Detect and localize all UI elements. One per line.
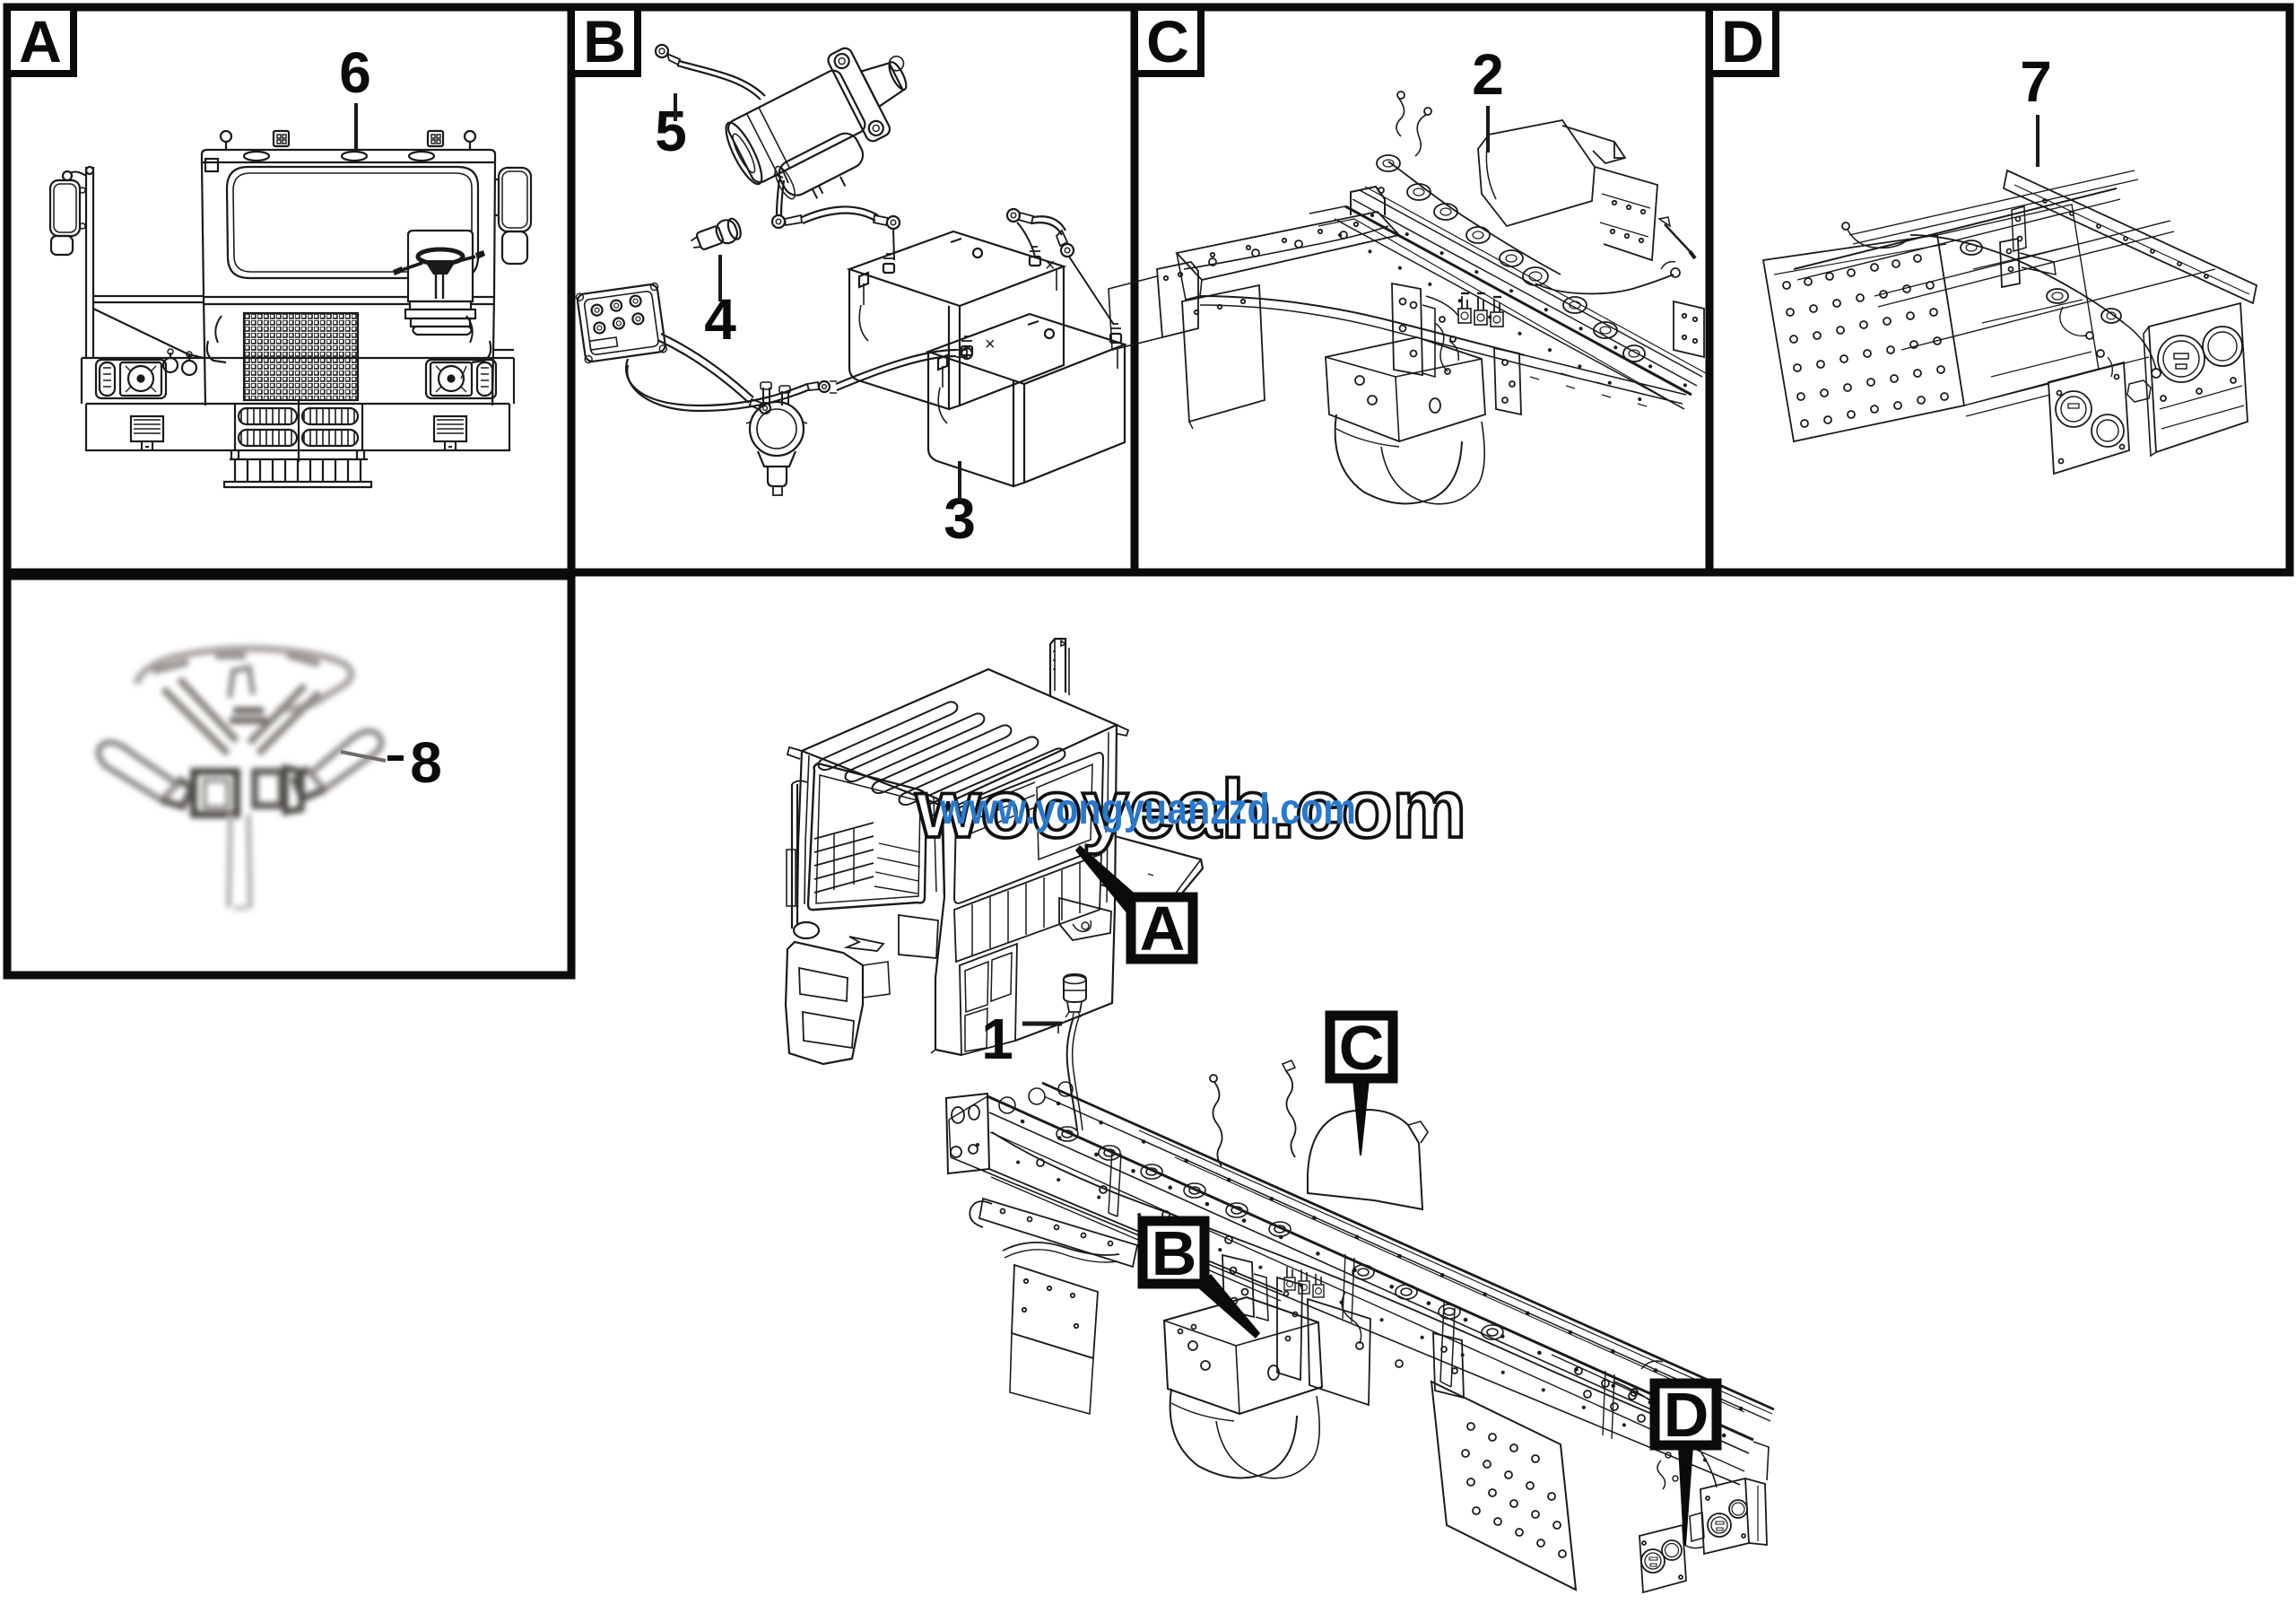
svg-text:1: 1 [981, 1007, 1013, 1071]
svg-text:B: B [1152, 1218, 1197, 1288]
svg-text:5: 5 [655, 99, 687, 163]
svg-text:2: 2 [1472, 42, 1504, 107]
svg-text:7: 7 [2020, 49, 2052, 114]
svg-text:www.yongyuanzzd.com: www.yongyuanzzd.com [939, 786, 1356, 833]
svg-text:6: 6 [339, 40, 371, 105]
svg-text:C: C [1339, 1013, 1385, 1083]
svg-text:D: D [1721, 8, 1764, 74]
svg-text:B: B [583, 8, 626, 74]
svg-text:A: A [19, 8, 62, 74]
svg-text:C: C [1146, 8, 1189, 74]
svg-text:×: × [1045, 256, 1056, 275]
svg-text:D: D [1664, 1380, 1709, 1450]
svg-text:8: 8 [410, 730, 442, 795]
svg-text:A: A [1140, 894, 1186, 964]
svg-text:×: × [985, 335, 996, 354]
